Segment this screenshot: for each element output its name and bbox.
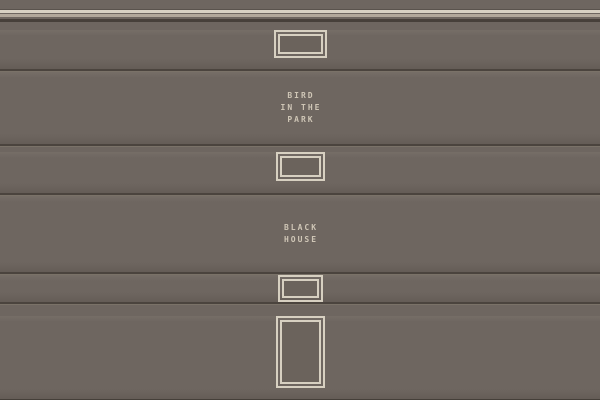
painting-label-bird-in-the-park: BIRD IN THE PARK [279,90,322,126]
picture-frame-small-3[interactable] [278,275,323,302]
panel-seam [0,144,600,147]
wall-panel-6 [0,316,600,399]
wall-panel-5 [0,275,600,302]
picture-frame-small-1[interactable] [274,30,327,58]
painting-label-black-house: BLACK HOUSE [282,222,318,246]
wall-panel-1 [0,30,600,69]
wall-panel-3 [0,152,600,193]
picture-canvas [280,320,321,384]
picture-canvas [282,279,319,298]
label-line: HOUSE [282,234,318,246]
label-line: BLACK [282,222,318,234]
wall-panel-2: BIRD IN THE PARK [0,72,600,144]
crown-molding [0,9,600,22]
gallery-wall: BIRD IN THE PARK BLACK HOUSE [0,0,600,400]
wall-top-cap [0,0,600,9]
label-line: BIRD [279,90,322,102]
panel-seam [0,302,600,305]
picture-frame-tall[interactable] [276,316,325,388]
label-line: PARK [279,114,322,126]
wall-panel-4: BLACK HOUSE [0,196,600,272]
picture-canvas [280,156,321,177]
label-line: IN THE [279,102,322,114]
picture-canvas [278,34,323,54]
picture-frame-small-2[interactable] [276,152,325,181]
